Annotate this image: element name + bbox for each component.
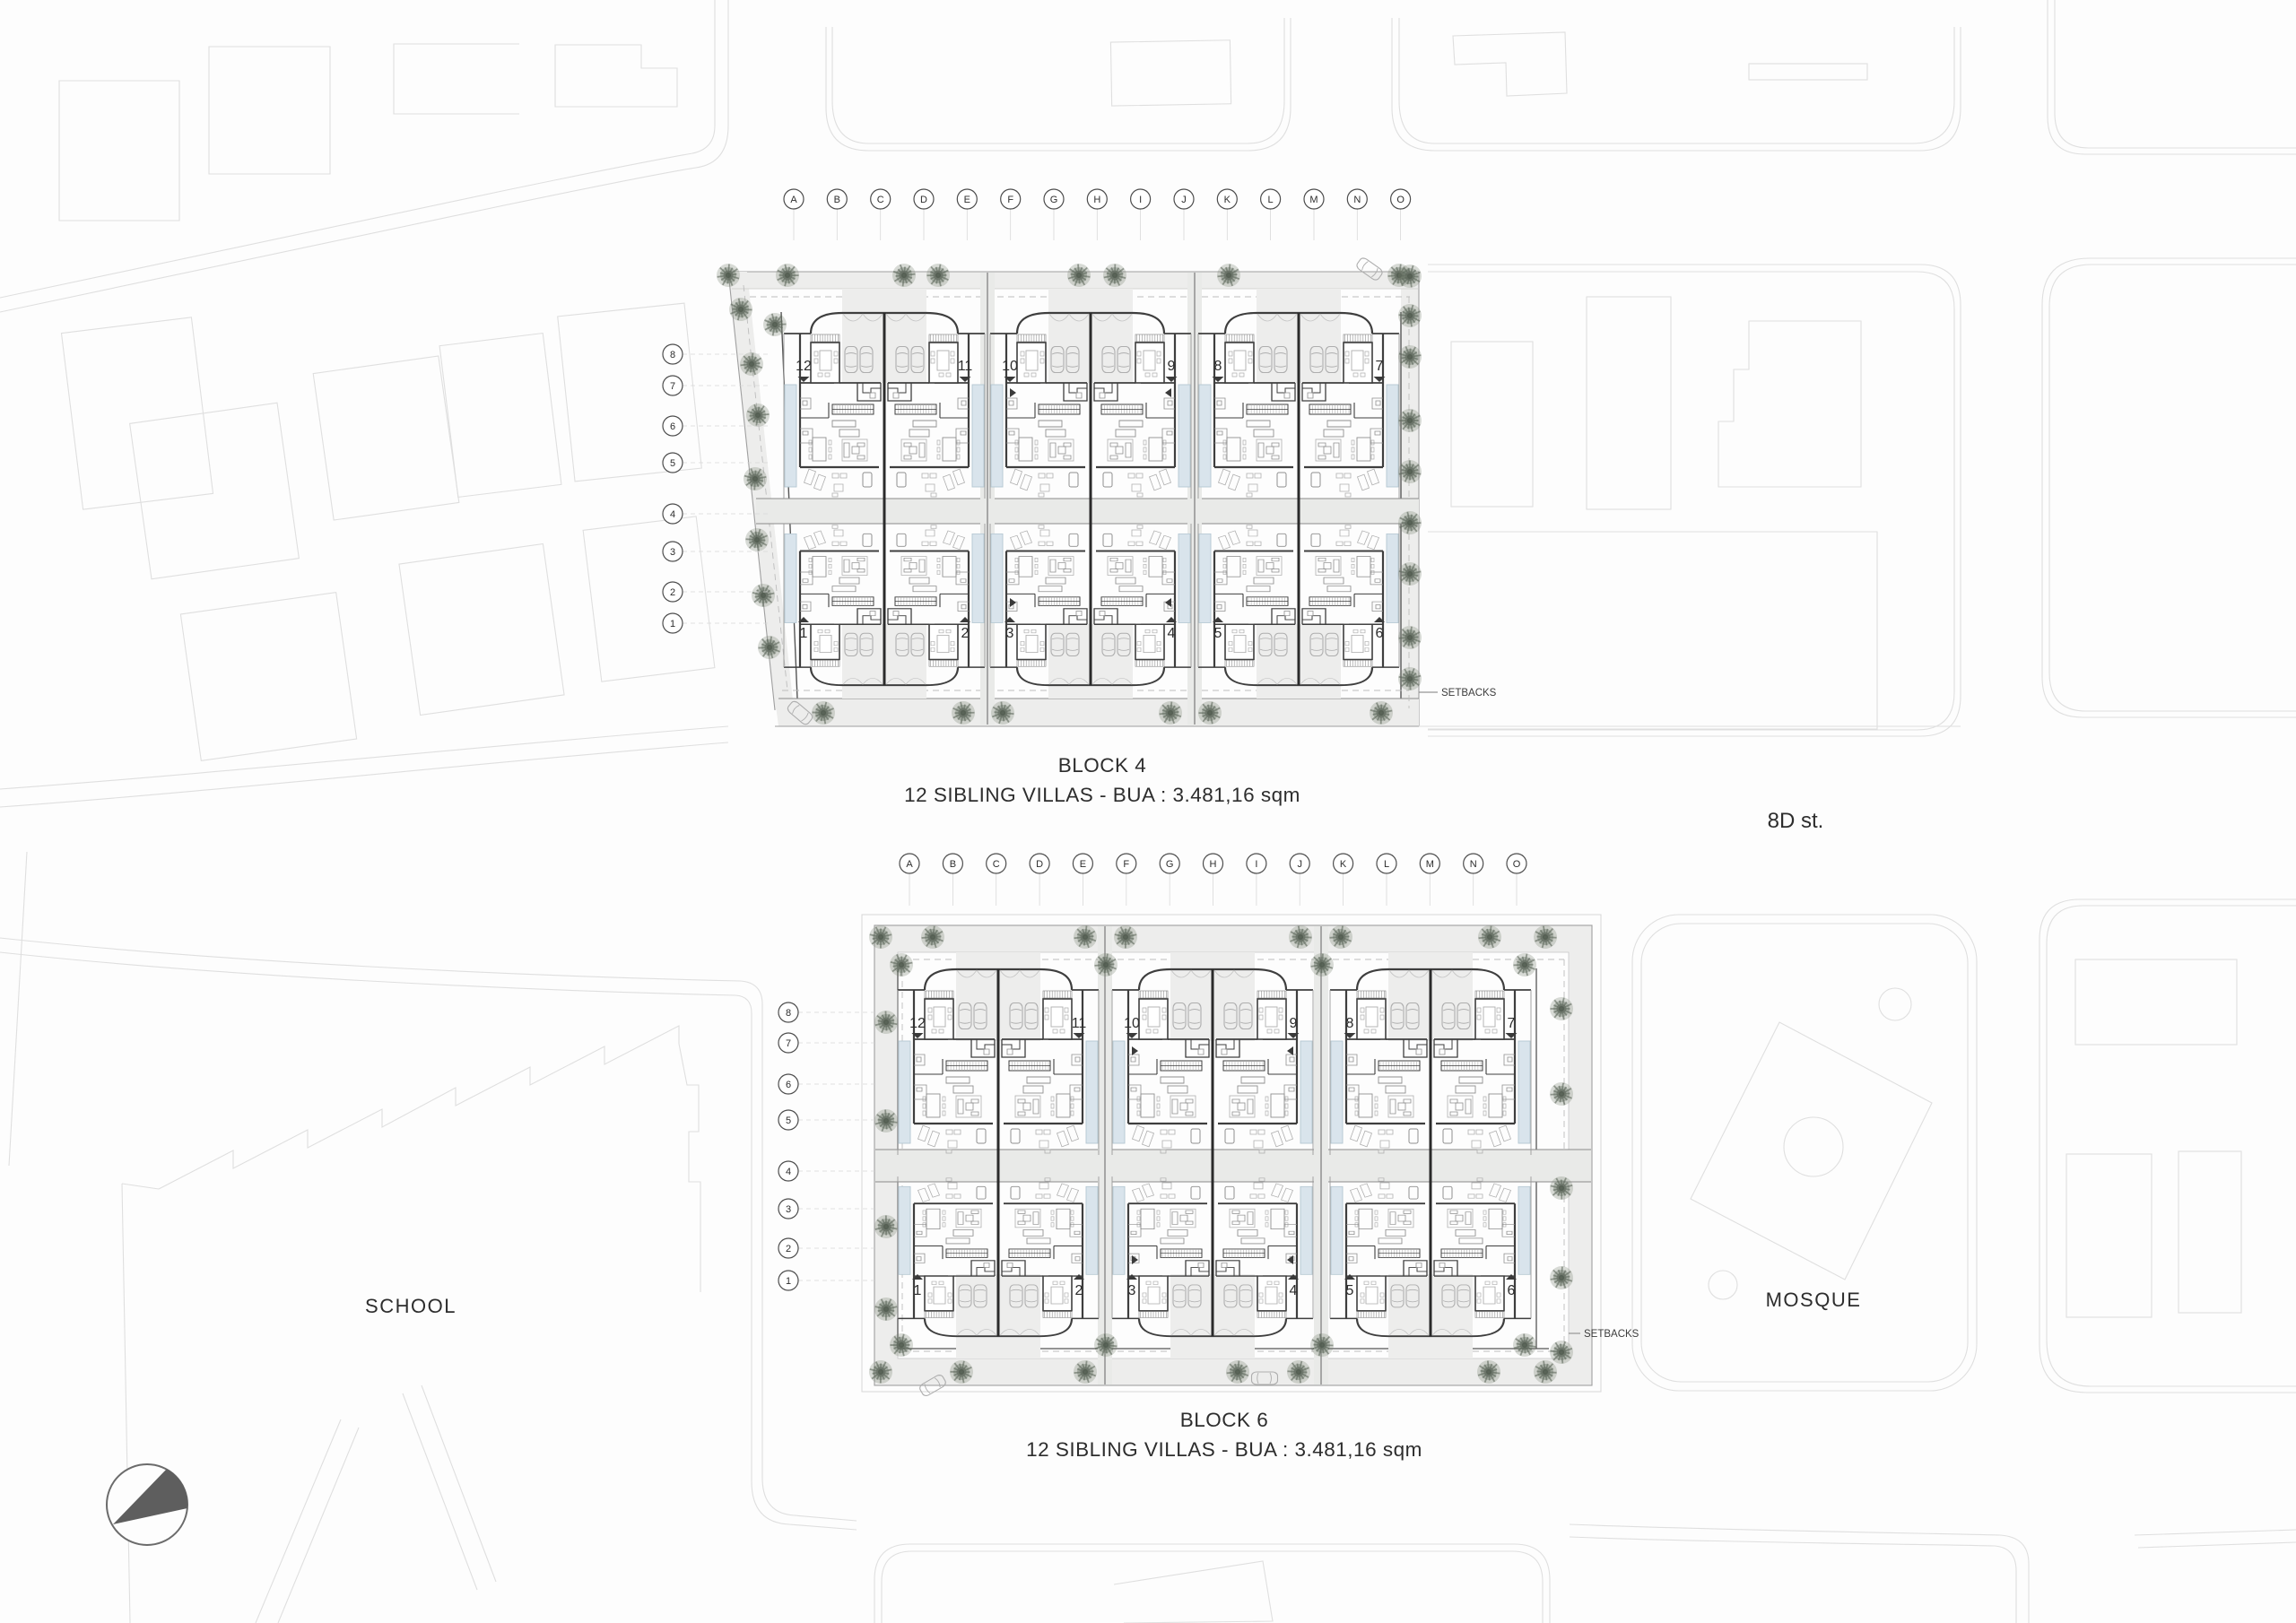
svg-text:G: G	[1166, 859, 1174, 870]
svg-text:4: 4	[786, 1167, 791, 1177]
svg-text:6: 6	[670, 421, 675, 432]
svg-text:2: 2	[1075, 1283, 1083, 1298]
svg-text:C: C	[993, 859, 1000, 870]
svg-text:O: O	[1513, 859, 1521, 870]
svg-text:5: 5	[1214, 626, 1222, 641]
svg-text:BLOCK 4: BLOCK 4	[1058, 754, 1147, 777]
svg-text:8: 8	[1214, 359, 1222, 374]
svg-text:8: 8	[670, 350, 675, 360]
svg-text:3: 3	[1128, 1283, 1136, 1298]
svg-text:J: J	[1297, 859, 1302, 870]
svg-text:4: 4	[670, 509, 675, 520]
svg-text:2: 2	[786, 1244, 791, 1254]
svg-text:1: 1	[800, 626, 808, 641]
svg-text:8: 8	[786, 1008, 791, 1019]
svg-text:5: 5	[670, 458, 675, 469]
svg-text:10: 10	[1002, 359, 1018, 374]
svg-text:G: G	[1050, 195, 1058, 205]
svg-text:B: B	[950, 859, 956, 870]
svg-text:F: F	[1007, 195, 1013, 205]
svg-text:E: E	[1080, 859, 1086, 870]
svg-text:7: 7	[1508, 1016, 1516, 1031]
svg-text:D: D	[920, 195, 927, 205]
svg-text:10: 10	[1124, 1016, 1140, 1031]
svg-text:6: 6	[786, 1080, 791, 1090]
svg-text:SETBACKS: SETBACKS	[1441, 688, 1497, 699]
svg-text:N: N	[1353, 195, 1361, 205]
svg-text:B: B	[834, 195, 840, 205]
svg-text:3: 3	[670, 547, 675, 558]
svg-text:11: 11	[958, 359, 973, 374]
svg-text:8: 8	[1346, 1016, 1354, 1031]
svg-text:12 SIBLING VILLAS - BUA : 3.48: 12 SIBLING VILLAS - BUA : 3.481,16 sqm	[1026, 1438, 1422, 1461]
svg-text:D: D	[1036, 859, 1043, 870]
svg-text:9: 9	[1290, 1016, 1298, 1031]
svg-text:6: 6	[1376, 626, 1384, 641]
svg-text:L: L	[1268, 195, 1274, 205]
svg-text:7: 7	[670, 381, 675, 392]
svg-text:C: C	[877, 195, 884, 205]
svg-text:5: 5	[786, 1115, 791, 1126]
svg-text:H: H	[1093, 195, 1100, 205]
svg-text:F: F	[1123, 859, 1129, 870]
svg-text:6: 6	[1508, 1283, 1516, 1298]
svg-text:2: 2	[670, 587, 675, 598]
svg-text:7: 7	[786, 1038, 791, 1049]
svg-text:12: 12	[909, 1016, 926, 1031]
svg-text:1: 1	[786, 1276, 791, 1287]
svg-text:5: 5	[1346, 1283, 1354, 1298]
svg-text:N: N	[1470, 859, 1477, 870]
svg-text:A: A	[906, 859, 913, 870]
svg-text:9: 9	[1168, 359, 1176, 374]
svg-text:I: I	[1255, 859, 1257, 870]
svg-text:M: M	[1426, 859, 1434, 870]
svg-text:L: L	[1384, 859, 1389, 870]
svg-text:3: 3	[786, 1204, 791, 1215]
svg-text:2: 2	[961, 626, 970, 641]
svg-text:SCHOOL: SCHOOL	[365, 1295, 457, 1317]
svg-text:SETBACKS: SETBACKS	[1584, 1329, 1639, 1340]
svg-text:4: 4	[1290, 1283, 1298, 1298]
svg-text:12: 12	[796, 359, 812, 374]
svg-text:H: H	[1210, 859, 1217, 870]
svg-text:12 SIBLING VILLAS - BUA : 3.48: 12 SIBLING VILLAS - BUA : 3.481,16 sqm	[904, 784, 1300, 806]
svg-text:M: M	[1309, 195, 1318, 205]
svg-text:A: A	[790, 195, 797, 205]
svg-text:1: 1	[670, 619, 675, 629]
svg-text:1: 1	[914, 1283, 922, 1298]
svg-text:O: O	[1396, 195, 1405, 205]
svg-text:K: K	[1224, 195, 1231, 205]
svg-text:MOSQUE: MOSQUE	[1766, 1289, 1862, 1311]
svg-text:4: 4	[1168, 626, 1176, 641]
svg-text:8D st.: 8D st.	[1768, 809, 1824, 833]
svg-text:3: 3	[1006, 626, 1014, 641]
svg-text:J: J	[1181, 195, 1187, 205]
svg-text:I: I	[1139, 195, 1142, 205]
svg-text:BLOCK 6: BLOCK 6	[1180, 1409, 1269, 1431]
svg-text:E: E	[964, 195, 970, 205]
svg-text:7: 7	[1376, 359, 1384, 374]
svg-text:K: K	[1340, 859, 1347, 870]
svg-text:11: 11	[1072, 1016, 1087, 1031]
